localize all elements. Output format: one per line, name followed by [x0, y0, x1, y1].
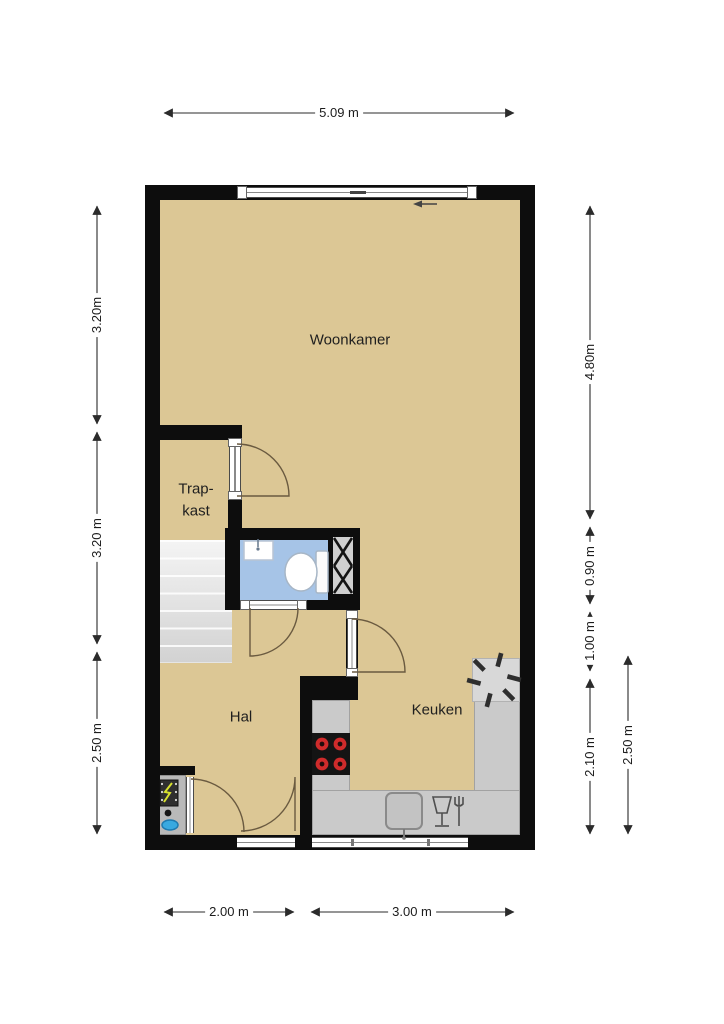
- dim-label-right-4: 2.10 m: [583, 733, 597, 781]
- door-jamb: [346, 668, 358, 677]
- trapkast-door-opening: [229, 447, 241, 491]
- dim-label-bottom-2: 3.00 m: [388, 905, 436, 919]
- slider-overlap-mark: [350, 191, 366, 194]
- window-jamb: [237, 186, 247, 199]
- window-mullion: [427, 839, 430, 846]
- room-label-hal: Hal: [230, 708, 253, 725]
- keuken-door-opening: [347, 619, 357, 668]
- wall-right: [520, 185, 535, 850]
- dim-label-left-3: 2.50 m: [90, 719, 104, 767]
- bathroom-door-opening: [250, 600, 297, 610]
- window-bottom: [312, 837, 468, 848]
- room-label-trapkast-line1: Trap-: [178, 480, 213, 497]
- dim-label-right-1: 4.80m: [583, 340, 597, 384]
- dim-label-right-3: 1.00 m: [583, 617, 597, 665]
- front-door-opening: [237, 837, 295, 848]
- meter-cupboard: [158, 775, 186, 835]
- room-label-trapkast-line2: kast: [182, 502, 210, 519]
- meter-cupboard-wall-top: [145, 766, 195, 775]
- dim-label-right-2: 0.90 m: [583, 542, 597, 590]
- door-jamb: [297, 600, 307, 610]
- room-label-keuken: Keuken: [412, 701, 463, 718]
- wall-left: [145, 185, 160, 850]
- window-mullion: [351, 839, 354, 846]
- kitchen-counter-bottom: [312, 790, 520, 835]
- door-jamb: [228, 438, 242, 447]
- dim-label-right-outer: 2.50 m: [621, 721, 635, 769]
- kitchen-counter-left: [312, 700, 350, 791]
- door-jamb: [228, 491, 242, 500]
- meter-cupboard-door: [186, 777, 194, 833]
- dim-label-bottom-1: 2.00 m: [205, 905, 253, 919]
- stairs: [160, 540, 232, 663]
- dim-label-left-2: 3.20 m: [90, 514, 104, 562]
- window-jamb: [467, 186, 477, 199]
- bathroom-floor: [240, 540, 328, 600]
- door-jamb: [240, 600, 250, 610]
- door-jamb: [346, 610, 358, 619]
- room-label-woonkamer: Woonkamer: [310, 331, 391, 348]
- trapkast-wall-right-b: [228, 499, 242, 529]
- hal-keuken-wall: [300, 676, 312, 835]
- floorplan-canvas: 5.09 m 3.20m 3.20 m 2.50 m 4.80m 0.90 m …: [0, 0, 724, 1024]
- dim-label-top: 5.09 m: [315, 106, 363, 120]
- dim-label-left-1: 3.20m: [90, 293, 104, 337]
- kitchen-counter-right: [474, 701, 520, 791]
- duct-shaft: [333, 537, 353, 594]
- boiler-unit: [472, 658, 520, 702]
